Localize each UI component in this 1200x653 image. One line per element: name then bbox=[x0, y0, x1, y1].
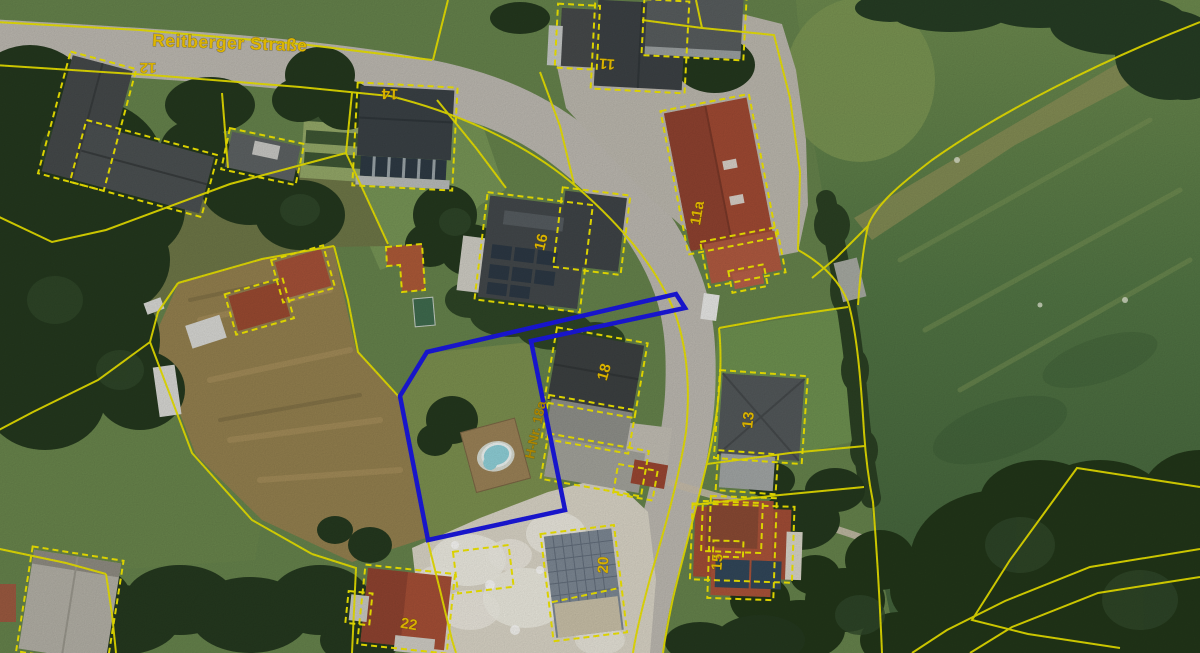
map-viewport[interactable]: Reitberger Straße 12 14 11 11a 16 18 13 … bbox=[0, 0, 1200, 653]
photo-grain-overlay bbox=[0, 0, 1200, 653]
aerial-map-svg: Reitberger Straße 12 14 11 11a 16 18 13 … bbox=[0, 0, 1200, 653]
